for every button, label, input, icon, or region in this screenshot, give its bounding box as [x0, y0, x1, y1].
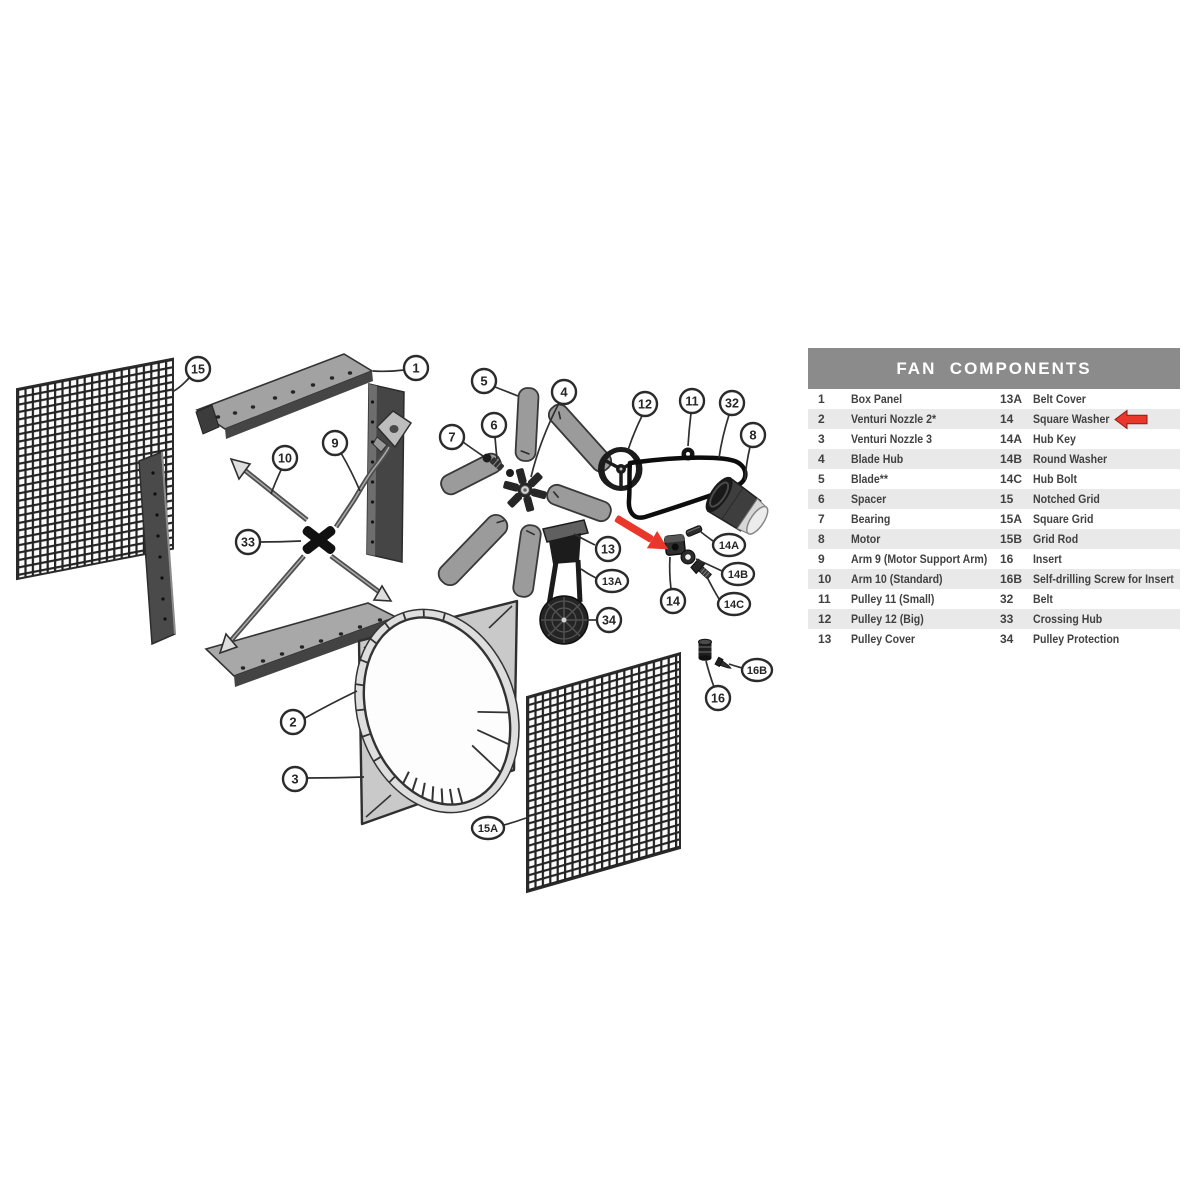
part-name: Spacer — [851, 492, 982, 506]
arm-10 — [231, 459, 307, 520]
part-name: Square Grid — [1033, 512, 1162, 526]
svg-text:13: 13 — [601, 543, 615, 557]
part-name: Arm 10 (Standard) — [851, 572, 982, 586]
svg-text:2: 2 — [289, 715, 296, 730]
part-name: Pulley Cover — [851, 632, 982, 646]
crossing-hub-33 — [301, 524, 337, 555]
part-number: 1 — [808, 392, 851, 406]
svg-text:32: 32 — [725, 397, 739, 411]
part-number: 10 — [808, 572, 851, 586]
callout-16b: 16B — [742, 659, 772, 681]
svg-text:14: 14 — [666, 595, 680, 609]
square-grid-15a — [527, 653, 680, 892]
part-number: 2 — [808, 412, 851, 426]
part-number: 32 — [1000, 592, 1033, 606]
part-number: 11 — [808, 592, 851, 606]
hub-key-14a — [685, 525, 702, 537]
callout-7: 7 — [440, 425, 464, 449]
part-name: Insert — [1033, 552, 1162, 566]
table-row: 9 Arm 9 (Motor Support Arm) 16 Insert — [808, 549, 1180, 569]
callout-16: 16 — [706, 686, 730, 710]
svg-text:12: 12 — [638, 398, 652, 412]
part-number: 7 — [808, 512, 851, 526]
table-row: 5 Blade** 14C Hub Bolt — [808, 469, 1180, 489]
callout-13a: 13A — [596, 570, 628, 592]
svg-text:15A: 15A — [478, 823, 498, 835]
part-number: 4 — [808, 452, 851, 466]
callout-4: 4 — [552, 380, 576, 404]
part-number: 34 — [1000, 632, 1033, 646]
table-row: 8 Motor 15B Grid Rod — [808, 529, 1180, 549]
part-name: Crossing Hub — [1033, 612, 1162, 626]
square-washer-arrow-icon — [1114, 409, 1148, 430]
callout-14a: 14A — [713, 534, 745, 556]
part-name: Grid Rod — [1033, 532, 1162, 546]
part-name: Pulley 12 (Big) — [851, 612, 982, 626]
callout-5: 5 — [472, 369, 496, 393]
svg-text:16: 16 — [711, 692, 725, 706]
callout-12: 12 — [633, 392, 657, 416]
part-number: 6 — [808, 492, 851, 506]
svg-text:8: 8 — [749, 428, 756, 443]
svg-text:4: 4 — [560, 385, 568, 400]
svg-text:15: 15 — [191, 363, 205, 377]
callout-1: 1 — [404, 356, 428, 380]
pulley-cover-13 — [543, 520, 588, 564]
callout-14b: 14B — [722, 563, 754, 585]
table-row: 13 Pulley Cover 34 Pulley Protection — [808, 629, 1180, 649]
callout-32: 32 — [720, 391, 744, 415]
part-name: Round Washer — [1033, 452, 1162, 466]
table-row-highlighted: 2 Venturi Nozzle 2* 14 Square Washer — [808, 409, 1180, 429]
part-name: Arm 9 (Motor Support Arm) — [851, 552, 982, 566]
svg-text:13A: 13A — [602, 576, 622, 588]
svg-text:16B: 16B — [747, 665, 767, 677]
part-number: 13 — [808, 632, 851, 646]
table-body: 1 Box Panel 13A Belt Cover 2 Venturi Noz… — [808, 389, 1180, 649]
part-name: Bearing — [851, 512, 982, 526]
callout-6: 6 — [482, 413, 506, 437]
part-number: 5 — [808, 472, 851, 486]
callout-14: 14 — [661, 589, 685, 613]
table-row: 4 Blade Hub 14B Round Washer — [808, 449, 1180, 469]
svg-text:10: 10 — [278, 452, 292, 466]
part-number: 16 — [1000, 552, 1033, 566]
table-header: FAN COMPONENTS — [808, 348, 1180, 389]
part-number: 14B — [1000, 452, 1033, 466]
fan-blade — [435, 511, 512, 590]
svg-text:34: 34 — [602, 614, 616, 628]
callout-2: 2 — [281, 710, 305, 734]
callout-15a: 15A — [472, 817, 504, 839]
svg-text:14C: 14C — [724, 599, 744, 611]
bearing-7b — [506, 469, 514, 477]
part-name: Venturi Nozzle 2* — [851, 412, 982, 426]
fan-components-page: 15 1 5 4 12 11 32 8 7 6 9 10 33 13 13A 3… — [0, 0, 1200, 1200]
fan-blade — [545, 482, 614, 523]
svg-text:6: 6 — [490, 418, 497, 433]
part-number: 8 — [808, 532, 851, 546]
svg-text:14B: 14B — [728, 569, 748, 581]
svg-text:33: 33 — [241, 536, 255, 550]
motor-8 — [701, 473, 774, 541]
part-name: Box Panel — [851, 392, 982, 406]
part-name: Notched Grid — [1033, 492, 1162, 506]
part-number: 33 — [1000, 612, 1033, 626]
callout-14c: 14C — [718, 593, 750, 615]
callout-8: 8 — [741, 423, 765, 447]
part-number: 9 — [808, 552, 851, 566]
part-name: Blade** — [851, 472, 982, 486]
svg-text:3: 3 — [291, 772, 298, 787]
part-name: Motor — [851, 532, 982, 546]
part-name: Pulley 11 (Small) — [851, 592, 982, 606]
part-number: 14A — [1000, 432, 1033, 446]
callout-34: 34 — [597, 608, 621, 632]
svg-text:5: 5 — [480, 374, 487, 389]
bearing-7 — [483, 454, 492, 463]
part-name: Belt — [1033, 592, 1162, 606]
table-row: 3 Venturi Nozzle 3 14A Hub Key — [808, 429, 1180, 449]
part-number: 14C — [1000, 472, 1033, 486]
arm-lower-right — [331, 556, 391, 601]
svg-text:7: 7 — [448, 430, 455, 445]
fan-blade — [515, 388, 539, 462]
part-name: Pulley Protection — [1033, 632, 1162, 646]
table-row: 10 Arm 10 (Standard) 16B Self-drilling S… — [808, 569, 1180, 589]
table-row: 11 Pulley 11 (Small) 32 Belt — [808, 589, 1180, 609]
part-number: 12 — [808, 612, 851, 626]
part-number: 15B — [1000, 532, 1033, 546]
pulley-protection-34 — [540, 596, 588, 644]
callout-9: 9 — [323, 431, 347, 455]
callout-3: 3 — [283, 767, 307, 791]
round-washer-14b — [681, 550, 695, 564]
box-panel-top — [196, 354, 373, 439]
table-row: 7 Bearing 15A Square Grid — [808, 509, 1180, 529]
part-number: 15 — [1000, 492, 1033, 506]
part-number: 14 — [1000, 412, 1033, 426]
part-name: Self-drilling Screw for Insert — [1033, 572, 1174, 586]
part-number: 13A — [1000, 392, 1033, 406]
parts-table: FAN COMPONENTS 1 Box Panel 13A Belt Cove… — [808, 348, 1180, 649]
part-name: Venturi Nozzle 3 — [851, 432, 982, 446]
svg-text:14A: 14A — [719, 540, 739, 552]
svg-text:1: 1 — [412, 361, 419, 376]
part-name: Hub Key — [1033, 432, 1162, 446]
svg-text:11: 11 — [685, 395, 698, 409]
part-name: Blade Hub — [851, 452, 982, 466]
callout-10: 10 — [273, 446, 297, 470]
insert-16 — [699, 639, 712, 661]
part-number: 15A — [1000, 512, 1033, 526]
fan-blade — [512, 524, 542, 598]
callout-15: 15 — [186, 357, 210, 381]
part-number: 3 — [808, 432, 851, 446]
callout-33: 33 — [236, 530, 260, 554]
callout-13: 13 — [596, 537, 620, 561]
table-row: 6 Spacer 15 Notched Grid — [808, 489, 1180, 509]
table-row: 1 Box Panel 13A Belt Cover — [808, 389, 1180, 409]
table-row: 12 Pulley 12 (Big) 33 Crossing Hub — [808, 609, 1180, 629]
part-name: Belt Cover — [1033, 392, 1162, 406]
svg-text:9: 9 — [331, 436, 338, 451]
callout-11: 11 — [680, 389, 704, 413]
part-number: 16B — [1000, 572, 1033, 586]
part-name: Hub Bolt — [1033, 472, 1162, 486]
